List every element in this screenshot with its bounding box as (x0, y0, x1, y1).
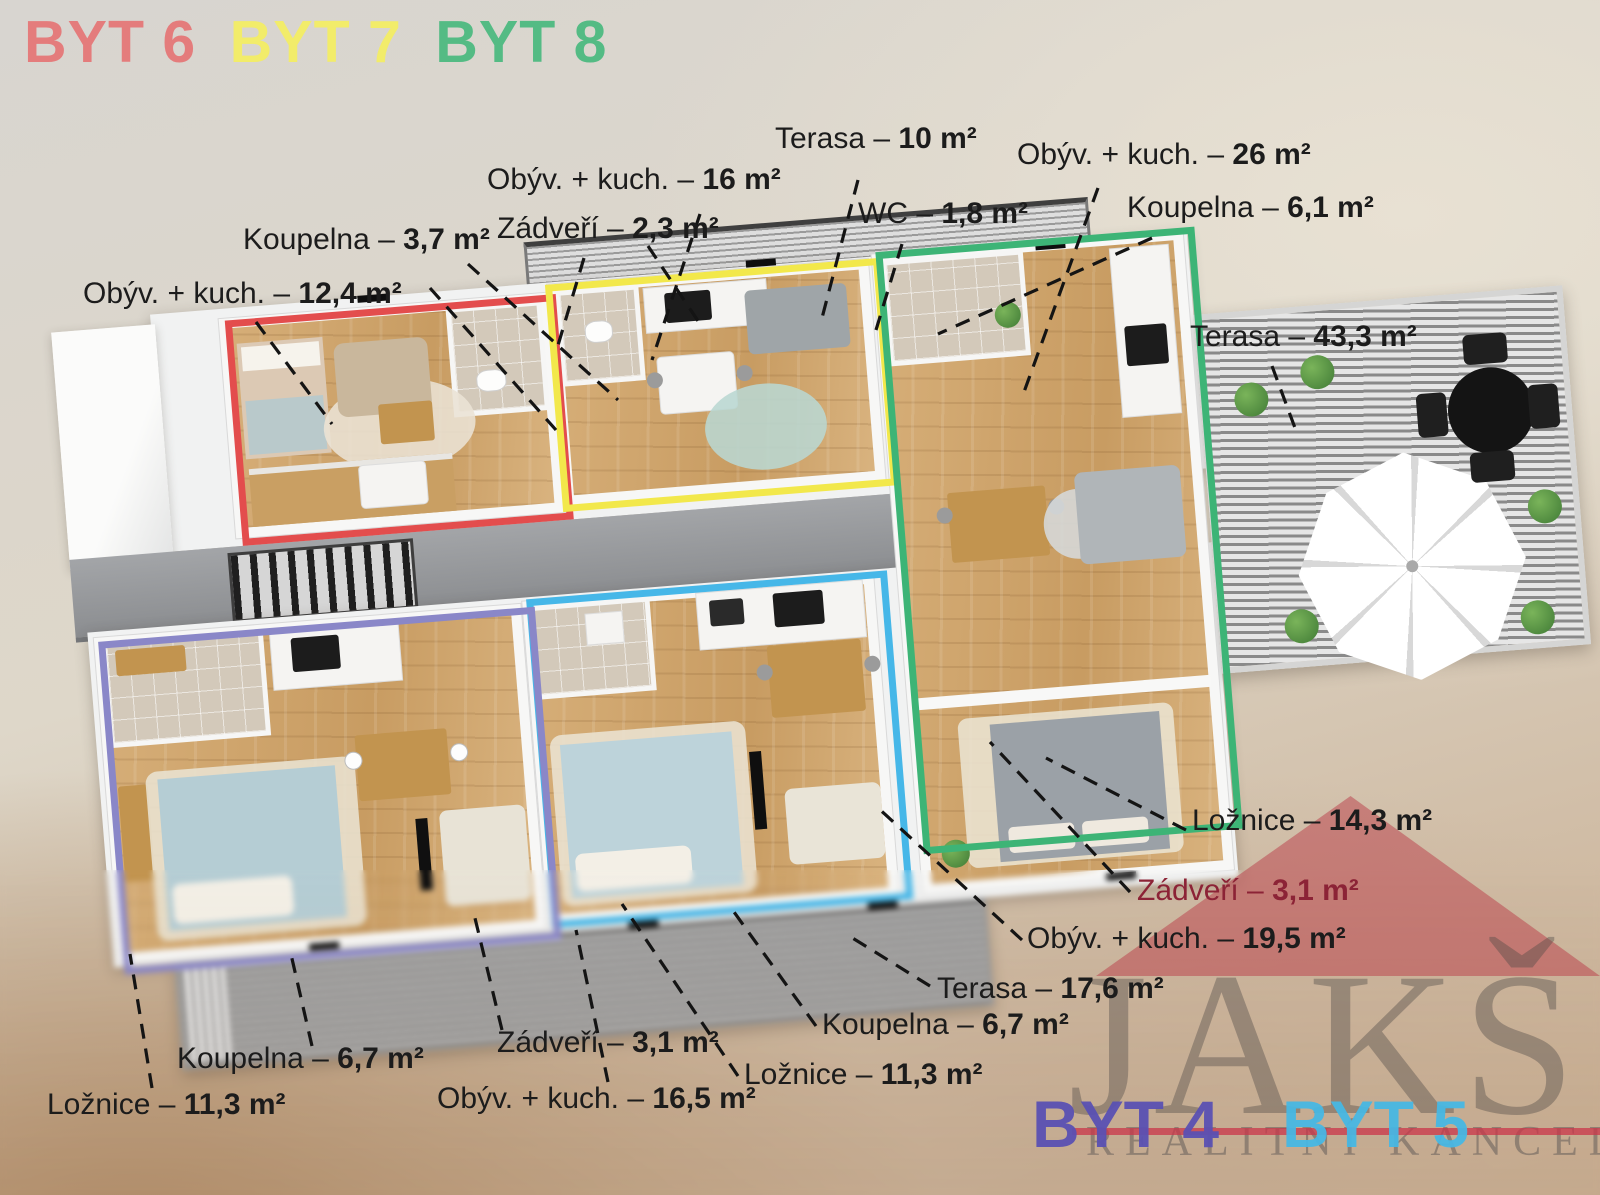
terrace-plant (1299, 354, 1336, 391)
room-area: 6,7 m² (982, 1008, 1069, 1041)
room-label-obyv-16: Obýv. + kuch. – 16 m² (487, 163, 781, 196)
room-label-loznice-143: Ložnice – 14,3 m² (1192, 804, 1432, 837)
room-area: 14,3 m² (1329, 804, 1432, 837)
room-area: 1,8 m² (941, 197, 1028, 230)
room-area: 43,3 m² (1313, 320, 1416, 353)
room-label-terasa-176: Terasa – 17,6 m² (937, 972, 1164, 1005)
outdoor-chair (1469, 450, 1515, 483)
left-roof-wing (51, 324, 174, 570)
title-byt6: BYT 6 (24, 9, 196, 75)
byt8-outline (875, 227, 1242, 855)
terrace-plant (1519, 599, 1556, 636)
room-name: Terasa – (937, 972, 1060, 1005)
outdoor-chair (1415, 392, 1448, 438)
outdoor-chair (1527, 383, 1560, 429)
title-byt5: BYT 5 (1282, 1086, 1469, 1162)
room-name: Terasa – (1190, 320, 1313, 353)
terrace-plant (1233, 381, 1270, 418)
byt4-outline (98, 607, 561, 975)
room-area: 16 m² (702, 163, 780, 196)
room-name: Koupelna – (822, 1008, 982, 1041)
room-area: 3,7 m² (403, 223, 490, 256)
room-label-zadveri-31-right: Zádveří – 3,1 m² (1137, 874, 1359, 907)
room-name: Obýv. + kuch. – (437, 1082, 652, 1115)
room-area: 3,1 m² (632, 1026, 719, 1059)
room-label-obyv-26: Obýv. + kuch. – 26 m² (1017, 138, 1311, 171)
outdoor-table (1445, 364, 1538, 457)
room-label-koupelna-37: Koupelna – 3,7 m² (243, 223, 490, 256)
room-area: 16,5 m² (652, 1082, 755, 1115)
room-area: 2,3 m² (632, 212, 719, 245)
room-name: Ložnice – (1192, 804, 1329, 837)
room-area: 19,5 m² (1242, 922, 1345, 955)
terrace-plant (1283, 608, 1320, 645)
room-name: Koupelna – (177, 1042, 337, 1075)
room-area: 6,1 m² (1287, 191, 1374, 224)
room-area: 6,7 m² (337, 1042, 424, 1075)
room-name: Koupelna – (243, 223, 403, 256)
room-label-obyv-124: Obýv. + kuch. – 12,4 m² (83, 277, 402, 310)
room-label-zadveri-23: Zádveří – 2,3 m² (497, 212, 719, 245)
room-name: Ložnice – (47, 1088, 184, 1121)
room-label-obyv-195: Obýv. + kuch. – 19,5 m² (1027, 922, 1346, 955)
room-label-loznice-113-left: Ložnice – 11,3 m² (47, 1088, 286, 1121)
outdoor-chair (1462, 332, 1508, 365)
title-byt8: BYT 8 (435, 9, 607, 75)
umbrella-pole (1406, 560, 1419, 573)
room-name: Obýv. + kuch. – (487, 163, 702, 196)
room-area: 17,6 m² (1060, 972, 1163, 1005)
byt6-outline (225, 294, 574, 546)
outdoor-dining-set (1412, 331, 1574, 493)
room-name: Obýv. + kuch. – (1017, 138, 1232, 171)
room-label-loznice-113-right: Ložnice – 11,3 m² (744, 1058, 983, 1091)
room-name: Ložnice – (744, 1058, 881, 1091)
room-label-terasa-433: Terasa – 43,3 m² (1190, 320, 1417, 353)
byt5-outline (526, 570, 913, 928)
title-byt7: BYT 7 (230, 9, 402, 75)
room-name: WC – (858, 197, 941, 230)
page-title: BYT 6 BYT 7 BYT 8 (24, 8, 623, 76)
room-area: 26 m² (1232, 138, 1310, 171)
room-area: 10 m² (898, 122, 976, 155)
room-label-terasa-10: Terasa – 10 m² (775, 122, 977, 155)
room-name: Zádveří – (497, 1026, 632, 1059)
floorplan-page: JAKŠ REALITNÍ KANCELÁŘ BYT 6 BYT 7 BYT 8… (0, 0, 1600, 1195)
room-name: Terasa – (775, 122, 898, 155)
room-label-koupelna-61: Koupelna – 6,1 m² (1127, 191, 1374, 224)
room-area: 11,3 m² (184, 1088, 286, 1121)
room-area: 11,3 m² (881, 1058, 983, 1091)
room-label-koupelna-67-left: Koupelna – 6,7 m² (177, 1042, 424, 1075)
room-name: Zádveří – (1137, 874, 1272, 907)
room-label-koupelna-67-right: Koupelna – 6,7 m² (822, 1008, 1069, 1041)
room-area: 12,4 m² (298, 277, 401, 310)
room-label-wc-18: WC – 1,8 m² (858, 197, 1028, 230)
byt7-outline (545, 258, 898, 512)
room-label-obyv-165: Obýv. + kuch. – 16,5 m² (437, 1082, 756, 1115)
terrace-plant (1527, 488, 1564, 525)
room-label-zadveri-31-bottom: Zádveří – 3,1 m² (497, 1026, 719, 1059)
room-area: 3,1 m² (1272, 874, 1359, 907)
room-name: Obýv. + kuch. – (1027, 922, 1242, 955)
title-byt4: BYT 4 (1032, 1086, 1219, 1162)
room-name: Koupelna – (1127, 191, 1287, 224)
room-name: Obýv. + kuch. – (83, 277, 298, 310)
room-name: Zádveří – (497, 212, 632, 245)
